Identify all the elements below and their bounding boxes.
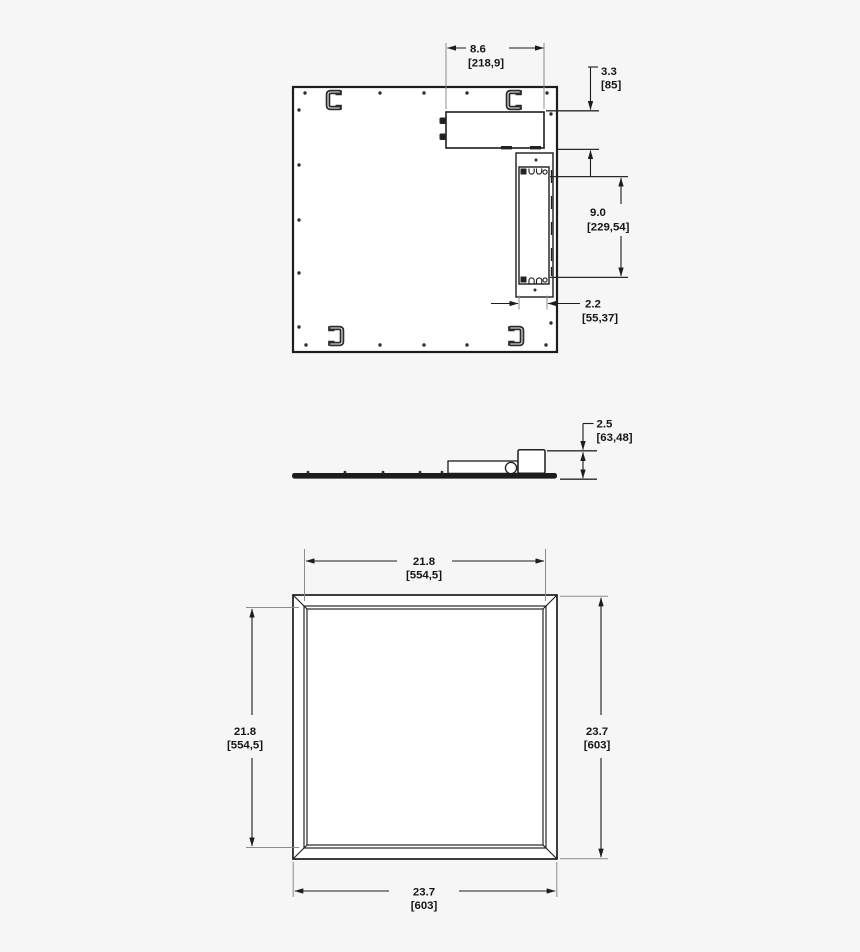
driver-assembly — [516, 153, 553, 297]
cable-gland — [440, 118, 447, 125]
dim-value: 2.5 — [597, 419, 613, 431]
back-view: 8.6 [218,9] 3.3 [85] 9.0 [229,54] — [293, 43, 630, 352]
dim-value: 9.0 — [590, 207, 606, 219]
dim-overall-width: 23.7 [603] — [293, 862, 557, 912]
dim-value: 21.8 — [413, 556, 435, 568]
cable-gland — [440, 134, 447, 141]
dim-opening-width: 21.8 [554,5] — [305, 549, 546, 601]
technical-drawing: 8.6 [218,9] 3.3 [85] 9.0 [229,54] — [0, 0, 860, 952]
dim-metric: [554,5] — [227, 740, 263, 752]
side-view: 2.5 [63,48] — [292, 419, 633, 480]
dim-metric: [85] — [601, 80, 621, 92]
junction-box — [440, 112, 545, 149]
dim-depth: 2.5 [63,48] — [547, 419, 633, 480]
dim-metric: [218,9] — [468, 58, 504, 70]
front-view: 21.8 [554,5] 21.8 [554,5] 23.7 [603] — [227, 549, 611, 912]
dim-value: 8.6 — [470, 44, 486, 56]
dim-value: 21.8 — [234, 726, 256, 738]
dim-metric: [603] — [584, 740, 611, 752]
dim-metric: [229,54] — [587, 222, 630, 234]
dim-value: 3.3 — [601, 66, 617, 78]
dim-metric: [554,5] — [406, 570, 442, 582]
dim-metric: [603] — [411, 900, 438, 912]
frame-outer — [293, 595, 557, 859]
led-driver — [519, 167, 549, 284]
dim-value: 23.7 — [586, 726, 608, 738]
dim-metric: [63,48] — [597, 432, 633, 444]
drawing-stage: 8.6 [218,9] 3.3 [85] 9.0 [229,54] — [0, 0, 860, 952]
dim-value: 23.7 — [413, 887, 435, 899]
junction-box-profile — [518, 450, 545, 473]
dim-metric: [55,37] — [582, 313, 618, 325]
dim-overall-height: 23.7 [603] — [560, 596, 611, 859]
dim-opening-height: 21.8 [554,5] — [227, 608, 299, 848]
dim-value: 2.2 — [585, 299, 601, 311]
knockout-circle — [505, 462, 516, 473]
dim-driver-length: 9.0 [229,54] — [550, 177, 630, 278]
